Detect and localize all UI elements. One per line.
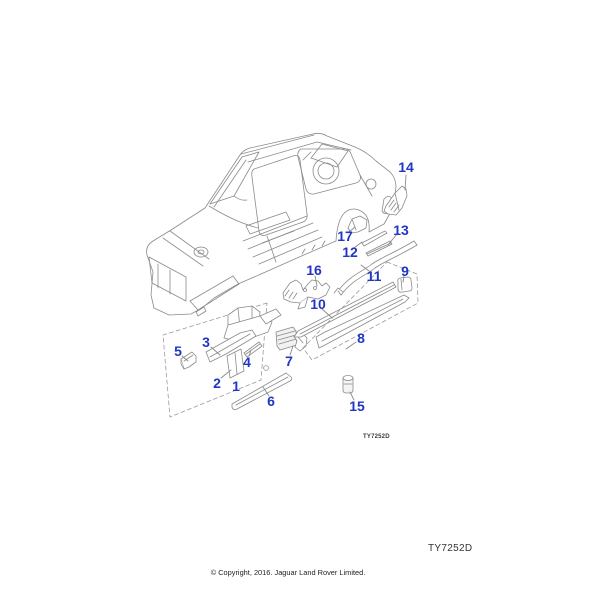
part-callout-3[interactable]: 3 xyxy=(202,335,210,349)
fender-inner-1 xyxy=(170,231,209,259)
part-5-bracket xyxy=(181,352,196,369)
spare-wheel-well-inner xyxy=(318,163,334,179)
spare-wheel-well xyxy=(313,158,339,184)
leader-line-14 xyxy=(405,175,406,190)
part-callout-11[interactable]: 11 xyxy=(367,269,382,283)
firewall-panel xyxy=(246,212,290,234)
drawing-code-inline: TY7252D xyxy=(363,434,390,440)
part-callout-16[interactable]: 16 xyxy=(306,263,322,277)
part-callout-4[interactable]: 4 xyxy=(243,355,251,369)
part-callout-15[interactable]: 15 xyxy=(349,399,365,413)
parts-diagram-canvas: 1234567891011121314151617 TY7252D TY7252… xyxy=(0,0,600,600)
rail-cross xyxy=(190,276,239,310)
part-shape-6 xyxy=(232,373,292,410)
part-callout-12[interactable]: 12 xyxy=(342,245,358,259)
part-callout-1[interactable]: 1 xyxy=(232,379,240,393)
part-9-bracket xyxy=(398,277,412,292)
group-box-1-marker xyxy=(264,366,269,371)
exploded-parts-diagram xyxy=(0,0,600,600)
drawing-code-footer: TY7252D xyxy=(428,543,472,554)
leader-line-8 xyxy=(346,342,356,349)
part-13-line xyxy=(367,243,391,254)
part-callout-14[interactable]: 14 xyxy=(398,160,414,174)
c-pillar-line xyxy=(303,152,311,160)
part-16-hole-1 xyxy=(304,289,307,292)
part-16-hole-2 xyxy=(314,287,317,290)
part-shape-15 xyxy=(343,376,353,394)
part-shape-5 xyxy=(181,352,196,369)
part-callout-13[interactable]: 13 xyxy=(393,223,409,237)
part-7-block xyxy=(276,327,297,350)
part-callout-10[interactable]: 10 xyxy=(310,297,326,311)
copyright-text: © Copyright, 2016. Jaguar Land Rover Lim… xyxy=(211,568,366,577)
roof-front-line xyxy=(241,135,314,154)
floor-rib-1 xyxy=(243,216,307,241)
part-shape-13 xyxy=(366,241,392,256)
part-6-line xyxy=(236,377,288,405)
part-callout-6[interactable]: 6 xyxy=(267,394,275,408)
front-rail-2 xyxy=(198,284,239,310)
part-shape-9 xyxy=(398,277,412,292)
front-rail-1 xyxy=(190,276,233,301)
part-15-plug-top xyxy=(343,376,353,381)
part-12-strip xyxy=(362,231,387,246)
part-2-panel xyxy=(227,349,244,378)
scuttle-line xyxy=(234,196,247,200)
seat-pan-line xyxy=(262,231,294,243)
radiator-support xyxy=(149,257,186,301)
part-shape-12 xyxy=(362,231,387,246)
part-shape-2 xyxy=(227,349,244,378)
part-callout-2[interactable]: 2 xyxy=(213,376,221,390)
part-callout-8[interactable]: 8 xyxy=(357,331,365,345)
part-callout-17[interactable]: 17 xyxy=(337,229,353,243)
strut-tower xyxy=(194,247,208,257)
part-callout-9[interactable]: 9 xyxy=(401,264,409,278)
fuel-filler xyxy=(366,179,376,189)
part-callout-5[interactable]: 5 xyxy=(174,344,182,358)
fender-inner-2 xyxy=(163,238,203,266)
part-callout-7[interactable]: 7 xyxy=(285,354,293,368)
